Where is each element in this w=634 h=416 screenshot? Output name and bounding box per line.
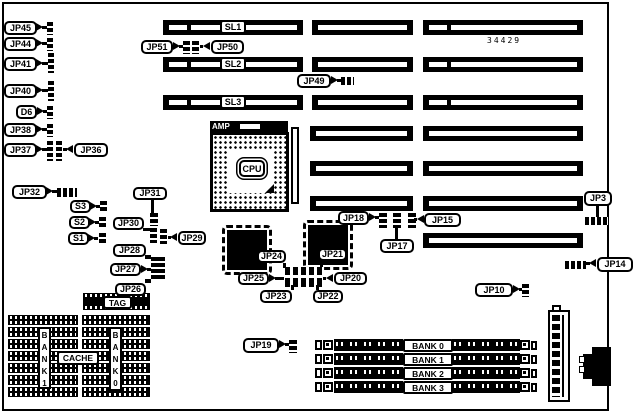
simm-clip-left xyxy=(315,368,322,378)
expansion-slot-bar xyxy=(312,57,413,72)
callout-pointer-jp49 xyxy=(331,76,338,84)
cache-sram-chip xyxy=(82,315,150,325)
slot-stripe xyxy=(316,166,407,171)
callout-tail-jp21 xyxy=(320,261,323,267)
callout-pointer-s2 xyxy=(89,218,96,226)
callout-pointer-jp41 xyxy=(36,59,43,67)
callout-tail-jp26 xyxy=(145,279,151,283)
simm-clip-right xyxy=(531,355,537,364)
amp-stripe xyxy=(240,124,260,129)
keyboard-connector xyxy=(592,347,611,386)
expansion-slot-bar xyxy=(423,20,583,35)
cache-label: CACHE xyxy=(57,351,99,365)
jumper-block-jp37 xyxy=(56,141,62,161)
callout-jp3: JP3 xyxy=(584,191,612,206)
jumper-block-jp41 xyxy=(48,53,54,73)
callout-jp37: JP37 xyxy=(4,143,37,157)
callout-jp31: JP31 xyxy=(133,187,167,200)
slot-stripe xyxy=(318,62,407,67)
slot-stripe-gap xyxy=(187,62,191,67)
callout-pointer-jp36 xyxy=(66,145,73,153)
jumper-block-d6 xyxy=(47,106,53,119)
simm-socket-bar xyxy=(452,367,520,379)
motherboard-jumper-diagram: 34429 AMP CPU TAG CACHE BANK1 BANK0 SL1S… xyxy=(0,0,634,416)
callout-pointer-jp40 xyxy=(36,86,43,94)
callout-tail-jp25 xyxy=(275,277,284,280)
jumper-block-jp37 xyxy=(47,141,53,161)
amp-socket-bar: AMP xyxy=(210,121,288,132)
callout-tail-jp3 xyxy=(596,206,599,217)
callout-tail-jp17 xyxy=(395,228,398,239)
cache-bank0-label: BANK0 xyxy=(109,327,122,391)
expansion-slot-bar xyxy=(312,95,413,110)
simm-clip-left xyxy=(315,340,322,350)
simm-socket-bar xyxy=(452,353,520,365)
slot-stripe-gap xyxy=(447,25,451,30)
callout-tail-jp28 xyxy=(145,255,151,259)
simm-bracket-left xyxy=(323,368,333,378)
cpu-pin1-triangle xyxy=(265,184,274,193)
callout-jp29: JP29 xyxy=(178,231,206,245)
jumper-block-jp30 xyxy=(150,228,157,243)
simm-socket-bar xyxy=(452,381,520,393)
jumper-block-s1 xyxy=(99,233,106,245)
callout-jp49: JP49 xyxy=(297,74,331,88)
simm-bracket-left xyxy=(323,382,333,392)
callout-jp32: JP32 xyxy=(12,185,47,199)
jumper-block-jp28 xyxy=(151,257,165,280)
callout-pointer-jp27 xyxy=(141,265,148,273)
cpu-socket-bracket xyxy=(291,127,299,204)
part-number: 34429 xyxy=(487,36,521,45)
expansion-slot-bar xyxy=(312,20,413,35)
jumper-block-jp44 xyxy=(47,38,53,51)
callout-jp10: JP10 xyxy=(475,283,513,297)
slot-stripe-gap xyxy=(187,100,191,105)
callout-jp50: JP50 xyxy=(211,40,244,54)
jumper-block-jp49 xyxy=(341,77,354,85)
simm-clip-right xyxy=(531,341,537,350)
keyboard-connector-notch xyxy=(579,356,585,363)
simm-bank-label: BANK 1 xyxy=(403,353,453,366)
expansion-slot-bar xyxy=(423,233,583,248)
callout-pointer-jp45 xyxy=(36,23,43,31)
callout-jp17: JP17 xyxy=(380,239,414,253)
callout-jp44: JP44 xyxy=(4,37,37,51)
jumper-block-jp18 xyxy=(379,213,387,228)
jumper-block-jp32 xyxy=(57,188,77,197)
cache-bank1-label: BANK1 xyxy=(38,327,51,389)
slot-stripe-gap xyxy=(187,25,191,30)
callout-tail-jp23 xyxy=(291,285,294,290)
callout-pointer-jp38 xyxy=(36,125,43,133)
callout-pointer-jp29 xyxy=(170,233,177,241)
callout-pointer-jp50 xyxy=(203,42,210,50)
callout-jp41: JP41 xyxy=(4,57,37,71)
callout-pointer-jp44 xyxy=(36,39,43,47)
jumper-block-jp51 xyxy=(183,41,190,54)
callout-jp51: JP51 xyxy=(141,40,173,54)
expansion-slot-bar xyxy=(423,196,583,211)
simm-socket-bar xyxy=(452,339,520,351)
callout-d6: D6 xyxy=(16,105,37,119)
callout-s3: S3 xyxy=(70,200,91,213)
power-connector xyxy=(548,310,570,402)
callout-jp15: JP15 xyxy=(424,213,461,227)
simm-bracket-right xyxy=(520,340,530,350)
callout-jp22: JP22 xyxy=(313,290,343,303)
slot-stripe xyxy=(318,100,407,105)
qfp-chip-right xyxy=(303,220,353,270)
callout-jp18: JP18 xyxy=(338,211,369,225)
jumper-block-jp38 xyxy=(47,124,53,137)
callout-jp36: JP36 xyxy=(74,143,108,157)
power-connector-rail xyxy=(562,315,564,397)
callout-pointer-s3 xyxy=(90,202,97,210)
expansion-slot-bar xyxy=(423,95,583,110)
slot-stripe xyxy=(429,100,577,105)
jumper-block-jp31 xyxy=(150,213,158,226)
jumper-block-jp18 xyxy=(393,213,401,228)
callout-jp28: JP28 xyxy=(113,244,146,257)
simm-socket-bar xyxy=(334,339,403,351)
callout-jp40: JP40 xyxy=(4,84,37,98)
simm-socket-bar xyxy=(334,367,403,379)
jumper-block-jp3 xyxy=(585,217,608,225)
slot-stripe xyxy=(429,201,577,206)
simm-socket-bar xyxy=(334,381,403,393)
jumper-block-jp25 xyxy=(285,267,323,287)
slot-stripe-gap xyxy=(447,100,451,105)
slot-stripe xyxy=(318,25,407,30)
callout-pointer-jp18 xyxy=(369,213,376,221)
callout-pointer-jp51 xyxy=(173,42,180,50)
tag-chip-label: TAG xyxy=(103,296,132,309)
slot-stripe xyxy=(429,25,577,30)
callout-pointer-jp32 xyxy=(46,187,53,195)
callout-jp24: JP24 xyxy=(257,250,286,263)
callout-jp30: JP30 xyxy=(113,217,144,230)
callout-jp14: JP14 xyxy=(597,257,633,272)
callout-jp19: JP19 xyxy=(243,338,279,353)
callout-jp26: JP26 xyxy=(115,283,146,296)
cache-sram-chip xyxy=(8,315,78,325)
expansion-slot-bar xyxy=(310,196,413,211)
jumper-block-jp45 xyxy=(47,22,53,35)
callout-tail-jp30 xyxy=(143,228,151,231)
jumper-block-s2 xyxy=(99,217,106,229)
slot-stripe xyxy=(429,166,577,171)
callout-jp38: JP38 xyxy=(4,123,37,137)
callout-pointer-jp10 xyxy=(513,285,520,293)
simm-bank-label: BANK 0 xyxy=(403,339,453,352)
callout-jp45: JP45 xyxy=(4,21,37,35)
callout-pointer-jp25 xyxy=(269,274,276,282)
simm-clip-right xyxy=(531,369,537,378)
jumper-block-jp40 xyxy=(48,81,54,101)
callout-jp21: JP21 xyxy=(318,248,347,261)
callout-pointer-jp37 xyxy=(36,145,43,153)
slot-stripe xyxy=(316,201,407,206)
simm-bracket-left xyxy=(323,340,333,350)
power-connector-pins xyxy=(552,315,560,397)
jumper-block-jp10 xyxy=(522,284,529,297)
callout-pointer-jp20 xyxy=(326,274,333,282)
jumper-block-jp19 xyxy=(289,340,297,353)
expansion-slot-bar xyxy=(423,126,583,141)
slot-label-sl1: SL1 xyxy=(220,20,246,34)
callout-s2: S2 xyxy=(69,216,90,229)
callout-pointer-jp14 xyxy=(589,259,596,267)
simm-bank-label: BANK 2 xyxy=(403,367,453,380)
cpu-label: CPU xyxy=(239,160,265,177)
callout-jp23: JP23 xyxy=(260,290,292,303)
expansion-slot-bar xyxy=(310,126,413,141)
expansion-slot-bar xyxy=(310,161,413,176)
callout-tail-jp31 xyxy=(151,200,154,213)
simm-clip-right xyxy=(531,383,537,392)
slot-stripe-gap xyxy=(447,62,451,67)
callout-pointer-jp19 xyxy=(279,340,286,348)
callout-pointer-jp15 xyxy=(417,215,424,223)
slot-stripe xyxy=(429,238,577,243)
callout-s1: S1 xyxy=(68,232,89,245)
callout-tail-jp24 xyxy=(283,263,286,268)
callout-jp20: JP20 xyxy=(334,272,367,285)
simm-bracket-right xyxy=(520,382,530,392)
jumper-block-jp30 xyxy=(160,229,167,244)
keyboard-connector-notch xyxy=(579,366,585,373)
simm-clip-left xyxy=(315,354,322,364)
expansion-slot-bar xyxy=(423,161,583,176)
jumper-block-jp51 xyxy=(192,41,199,54)
callout-jp27: JP27 xyxy=(110,263,141,276)
simm-bracket-left xyxy=(323,354,333,364)
jumper-block-jp14 xyxy=(565,261,586,269)
simm-bank-label: BANK 3 xyxy=(403,381,453,394)
slot-stripe xyxy=(429,62,577,67)
slot-stripe xyxy=(429,131,577,136)
simm-bracket-right xyxy=(520,354,530,364)
callout-pointer-d6 xyxy=(37,107,44,115)
callout-pointer-s1 xyxy=(88,234,95,242)
amp-label: AMP xyxy=(212,122,230,131)
expansion-slot-bar xyxy=(423,57,583,72)
simm-clip-left xyxy=(315,382,322,392)
callout-jp25: JP25 xyxy=(238,272,269,285)
slot-stripe xyxy=(316,131,407,136)
simm-bracket-right xyxy=(520,368,530,378)
slot-label-sl2: SL2 xyxy=(220,57,246,71)
jumper-block-s3 xyxy=(100,201,107,213)
slot-label-sl3: SL3 xyxy=(220,95,246,109)
simm-socket-bar xyxy=(334,353,403,365)
